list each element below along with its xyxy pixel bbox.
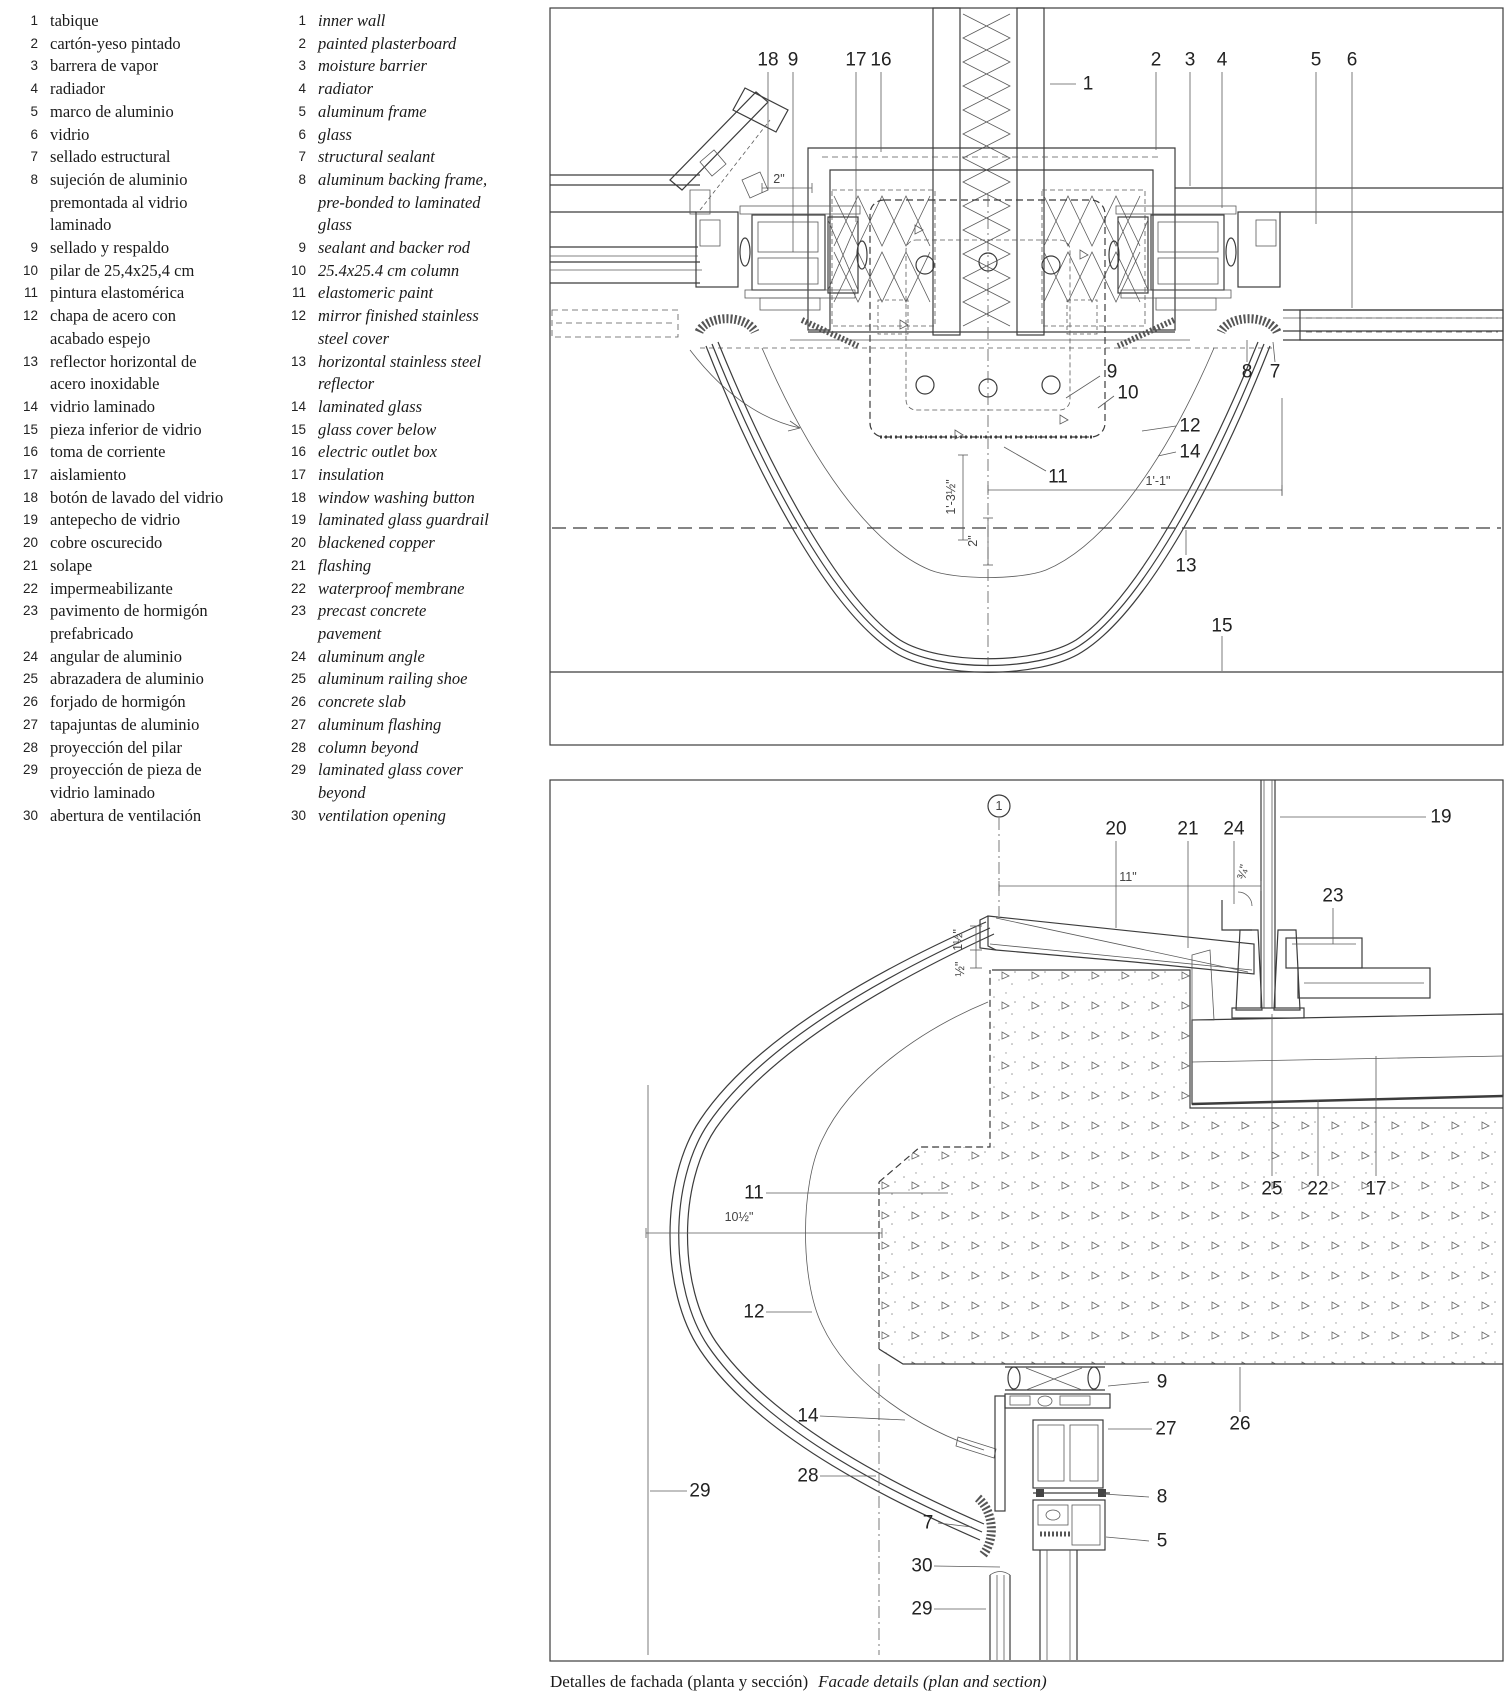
callout-label: 11 xyxy=(1048,467,1068,488)
lower-mullion xyxy=(990,1367,1110,1660)
column-plan xyxy=(870,200,1105,439)
callout-label: 4 xyxy=(1217,50,1228,71)
window-washing-arm xyxy=(670,88,788,214)
callout-label: 27 xyxy=(1155,1419,1176,1440)
callout-label: 1'-3½" xyxy=(944,479,958,514)
callout-label: 7 xyxy=(923,1513,934,1534)
callout-label: ½" xyxy=(953,962,967,977)
callout-label: 21 xyxy=(1177,819,1198,840)
callout-label: 8 xyxy=(1157,1487,1168,1508)
callout-label: 10 xyxy=(1117,383,1138,404)
callout-label: 11 xyxy=(744,1183,764,1204)
leader-line xyxy=(1098,396,1114,408)
concrete-slab xyxy=(879,970,1503,1364)
callout-label: 1 xyxy=(1083,74,1094,95)
leader-line xyxy=(1104,1494,1149,1497)
callout-label: 9 xyxy=(1157,1372,1168,1393)
callout-label: 9 xyxy=(1107,362,1118,383)
section-detail-drawing: 1 xyxy=(550,780,1503,1661)
swing-arc xyxy=(690,350,800,428)
callout-label: 23 xyxy=(1322,886,1343,907)
coping xyxy=(980,916,1254,974)
grid-bubble: 1 xyxy=(988,795,1010,916)
radiator-enclosure xyxy=(700,148,1275,348)
callout-label: 6 xyxy=(1347,50,1358,71)
callout-label: 10½" xyxy=(725,1210,754,1224)
callout-label: 12 xyxy=(743,1302,764,1323)
callout-label: 17 xyxy=(845,50,866,71)
precast-pavement xyxy=(1286,938,1430,998)
leader-line xyxy=(1108,1382,1149,1386)
gasket-arc xyxy=(978,1498,991,1556)
leader-line xyxy=(820,1416,905,1420)
callout-label: 25 xyxy=(1261,1179,1282,1200)
facade-detail-drawings: 1891716123456910121411871315 2"1'-3½"2"1… xyxy=(0,0,1512,1702)
sheet-caption: Detalles de fachada (planta y sección)Fa… xyxy=(550,1672,1047,1692)
callout-label: 1'-1" xyxy=(1146,474,1171,488)
detail-sheet-page: 1tabique2cartón-yeso pintado3barrera de … xyxy=(0,0,1512,1702)
callout-label: ¾" xyxy=(1234,863,1251,881)
leader-line xyxy=(934,1566,1000,1567)
callout-label: 1½" xyxy=(951,929,965,951)
glass-guardrail xyxy=(1261,780,1275,1008)
callout-label: 24 xyxy=(1223,819,1245,840)
plan-frame xyxy=(550,8,1503,745)
callout-label: 15 xyxy=(1211,616,1232,637)
callout-label: 20 xyxy=(1105,819,1126,840)
callout-label: 12 xyxy=(1179,416,1200,437)
gasket-arc xyxy=(699,319,755,332)
callout-label: 16 xyxy=(870,50,891,71)
callout-label: 5 xyxy=(1157,1531,1168,1552)
flashing-plan-right xyxy=(1300,310,1503,340)
callout-label: 28 xyxy=(797,1466,818,1487)
plan-dim-texts: 2"1'-3½"2"1'-1" xyxy=(773,172,1170,547)
flashing-plan-left xyxy=(552,310,678,337)
callout-label: 22 xyxy=(1307,1179,1328,1200)
caption-spanish: Detalles de fachada (planta y sección) xyxy=(550,1672,808,1691)
callout-label: 7 xyxy=(1270,362,1281,383)
callout-label: 26 xyxy=(1229,1414,1250,1435)
callout-label: 17 xyxy=(1365,1179,1386,1200)
caption-english: Facade details (plan and section) xyxy=(818,1672,1047,1691)
insulation-band xyxy=(1192,950,1503,1104)
inner-wall xyxy=(933,8,1044,335)
callout-label: 14 xyxy=(1179,442,1201,463)
callout-label: 13 xyxy=(1175,556,1196,577)
callout-label: 2" xyxy=(966,535,980,546)
callout-label: 3 xyxy=(1185,50,1196,71)
callout-label: 5 xyxy=(1311,50,1322,71)
grid-bubble-number: 1 xyxy=(996,799,1003,813)
leader-line xyxy=(1066,376,1100,398)
callout-label: 30 xyxy=(911,1556,932,1577)
callout-label: 18 xyxy=(757,50,778,71)
callout-label: 11" xyxy=(1119,870,1136,884)
leader-line xyxy=(1273,342,1275,362)
plan-detail-drawing: 1891716123456910121411871315 2"1'-3½"2"1… xyxy=(550,8,1503,745)
callout-label: 8 xyxy=(1242,362,1253,383)
railing-shoe xyxy=(1222,900,1304,1018)
leader-line xyxy=(1004,447,1046,471)
callout-label: 29 xyxy=(911,1599,932,1620)
plan-callouts: 1891716123456910121411871315 xyxy=(757,50,1357,672)
callout-label: 29 xyxy=(689,1481,710,1502)
callout-label: 2 xyxy=(1151,50,1162,71)
callout-label: 9 xyxy=(788,50,799,71)
callout-label: 19 xyxy=(1430,807,1451,828)
callout-label: 14 xyxy=(797,1406,819,1427)
glazing-lines xyxy=(550,175,1503,340)
callout-label: 2" xyxy=(773,172,784,186)
leader-line xyxy=(1142,426,1176,431)
leader-line xyxy=(1106,1537,1149,1541)
